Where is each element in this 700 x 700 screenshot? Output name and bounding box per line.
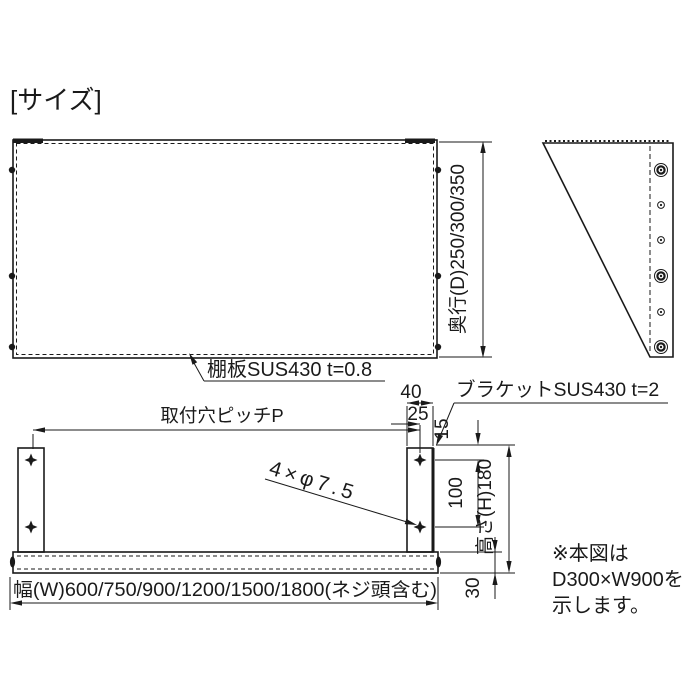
depth-dimension-label: 奥行(D)250/300/350	[447, 164, 469, 334]
dim-25-label: 25	[407, 404, 428, 425]
bracket-material-label: ブラケットSUS430 t=2	[456, 378, 659, 401]
depth-dimension: 奥行(D)250/300/350	[439, 141, 492, 358]
arrowhead-down	[480, 346, 485, 358]
edge-tab-bump	[435, 167, 441, 173]
mounting-hole-diamond	[25, 454, 38, 467]
top-view: 奥行(D)250/300/350 棚板SUS430 t=0.8	[9, 139, 492, 382]
pitch-dimension-label: 取付穴ピッチP	[160, 405, 283, 426]
leader-arrowhead	[405, 519, 417, 525]
dim-30-label: 30	[463, 577, 484, 598]
bracket-hole-small	[658, 202, 665, 209]
bracket-side-outline	[543, 143, 673, 357]
bracket-material-leader: ブラケットSUS430 t=2	[436, 378, 668, 446]
mounting-hole-diamond	[414, 454, 427, 467]
front-shelf-strip	[13, 552, 438, 573]
top-view-inner-dashed-edge	[17, 144, 434, 355]
shelf-material-label: 棚板SUS430 t=0.8	[207, 358, 372, 381]
arrowhead-right	[408, 427, 420, 432]
mounting-hole-diamond	[25, 521, 38, 534]
arrowhead-down	[475, 433, 480, 445]
edge-tab-bump	[9, 167, 15, 173]
bracket-hole-large	[655, 341, 668, 354]
edge-tab-bump	[435, 344, 441, 350]
note-line-2: D300×W900を	[552, 569, 684, 591]
right-tab-mark	[405, 139, 435, 144]
mounting-hole-diamond	[414, 521, 427, 534]
holes-spec-label: 4×φ7.5	[267, 457, 361, 506]
dim-15-label: 15	[432, 418, 453, 439]
shelf-drawing-svg: [サイズ] 奥行(D)250/300/350 棚板SUS430 t=0.8	[0, 0, 700, 700]
width-dimension: 幅(W)600/750/900/1200/1500/1800(ネジ頭含む)	[10, 577, 438, 610]
note-block: ※本図は D300×W900を 示します。	[552, 542, 684, 617]
arrowhead-up	[492, 573, 497, 585]
arrowhead-right	[426, 600, 438, 605]
dim-40-label: 40	[400, 382, 421, 403]
edge-tab-bump	[9, 273, 15, 279]
arrowhead-up	[480, 141, 485, 153]
page-title: [サイズ]	[10, 85, 102, 115]
technical-drawing-page: [サイズ] 奥行(D)250/300/350 棚板SUS430 t=0.8	[0, 0, 700, 700]
note-line-3: 示します。	[552, 595, 650, 617]
arrowhead-left	[33, 427, 45, 432]
top-view-outline	[13, 140, 437, 358]
leader-line	[194, 363, 204, 381]
bracket-hole-small	[658, 309, 665, 316]
side-view	[543, 141, 673, 357]
arrowhead-up	[506, 445, 511, 457]
bracket-hole-large	[655, 164, 668, 177]
shelf-end-bump	[436, 557, 441, 568]
bracket-hole-large	[655, 270, 668, 283]
bracket-hole-small	[658, 237, 665, 244]
edge-tab-bump	[435, 273, 441, 279]
edge-tab-bump	[9, 344, 15, 350]
holes-spec-leader: 4×φ7.5	[265, 457, 417, 525]
arrowhead-left	[10, 600, 22, 605]
dim-100-label: 100	[446, 477, 467, 509]
pitch-dimension: 取付穴ピッチP	[33, 405, 420, 449]
shelf-end-bump	[10, 557, 15, 568]
right-dimension-stack: 15 100 高さ(H)180 30	[432, 418, 515, 599]
note-line-1: ※本図は	[552, 542, 629, 565]
arrowhead-down	[506, 561, 511, 573]
left-tab-mark	[13, 139, 43, 144]
width-dimension-label: 幅(W)600/750/900/1200/1500/1800(ネジ頭含む)	[13, 579, 437, 601]
